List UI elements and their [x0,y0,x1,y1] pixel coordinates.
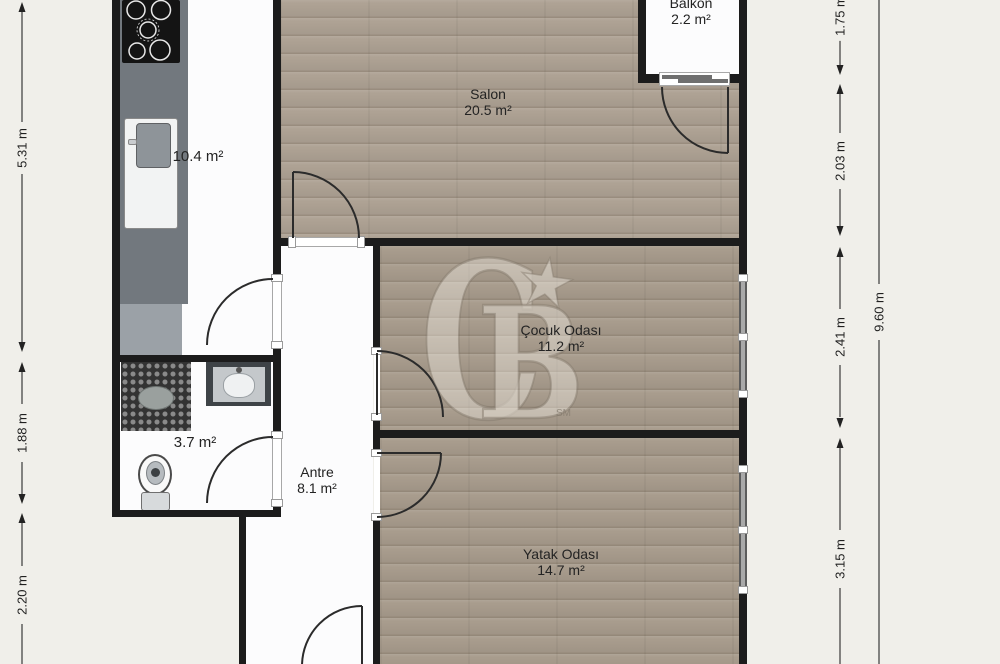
antre-area: 8.1 m² [272,480,362,496]
salon-name: Salon [400,86,576,102]
yatak-odasi-name: Yatak Odası [473,546,649,562]
bathroom-area-label: 3.7 m² [150,435,240,451]
kitchen-area: 10.4 m² [153,149,243,165]
dim-left-lower: 2.20 m [14,570,31,620]
bathroom-area: 3.7 m² [150,435,240,451]
dim-right-yatak: 3.15 m [832,534,849,584]
cocuk-odasi-area: 11.2 m² [473,338,649,354]
dim-right-balcony: 1.75 m [832,0,849,41]
salon-label: Salon 20.5 m² [400,86,576,118]
dim-left-kitchen: 5.31 m [14,123,31,173]
cocuk-odasi-label: Çocuk Odası 11.2 m² [473,322,649,354]
stove-burners [127,1,171,61]
dim-right-salon: 2.03 m [832,136,849,186]
antre-name: Antre [272,464,362,480]
balcony-name: Balkon [646,0,736,11]
kitchen-door-arc [207,279,273,345]
salon-area: 20.5 m² [400,102,576,118]
cocuk-odasi-name: Çocuk Odası [473,322,649,338]
dim-right-cocuk: 2.41 m [832,312,849,362]
balcony-area: 2.2 m² [646,11,736,27]
watermark-sm-mark: SM [556,408,571,419]
watermark-star-icon: ★ [512,241,581,325]
dim-left-bathroom: 1.88 m [14,408,31,458]
yatak-odasi-label: Yatak Odası 14.7 m² [473,546,649,578]
balcony-door-arc [662,87,728,153]
salon-door-arc [293,172,359,238]
balcony-label: Balkon 2.2 m² [646,0,736,27]
antre-label: Antre 8.1 m² [272,464,362,496]
floor-plan: C B ★ SM Salon 20.5 m² [0,0,1000,664]
dim-right-total: 9.60 m [871,287,888,337]
entrance-door-arc [302,606,362,664]
yatak-odasi-area: 14.7 m² [473,562,649,578]
kitchen-area-label: 10.4 m² [153,149,243,165]
